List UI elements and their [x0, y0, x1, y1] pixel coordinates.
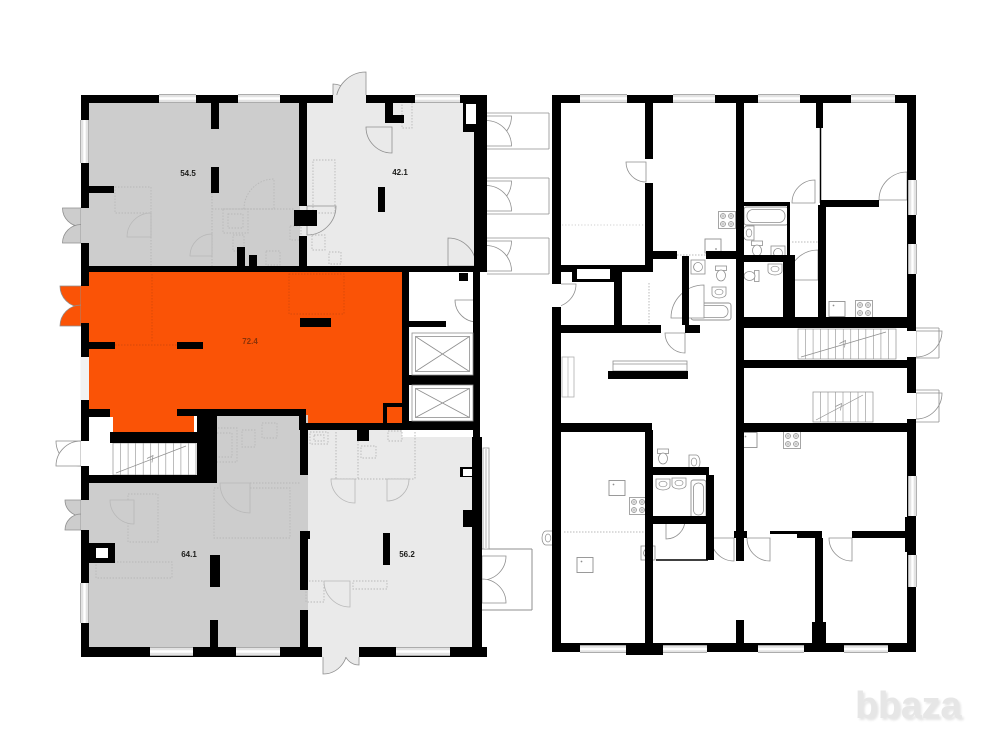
svg-text:56.2: 56.2	[399, 550, 415, 559]
svg-text:72.4: 72.4	[242, 337, 258, 346]
svg-text:54.5: 54.5	[180, 169, 196, 178]
svg-text:42.1: 42.1	[392, 168, 408, 177]
svg-text:64.1: 64.1	[181, 550, 197, 559]
